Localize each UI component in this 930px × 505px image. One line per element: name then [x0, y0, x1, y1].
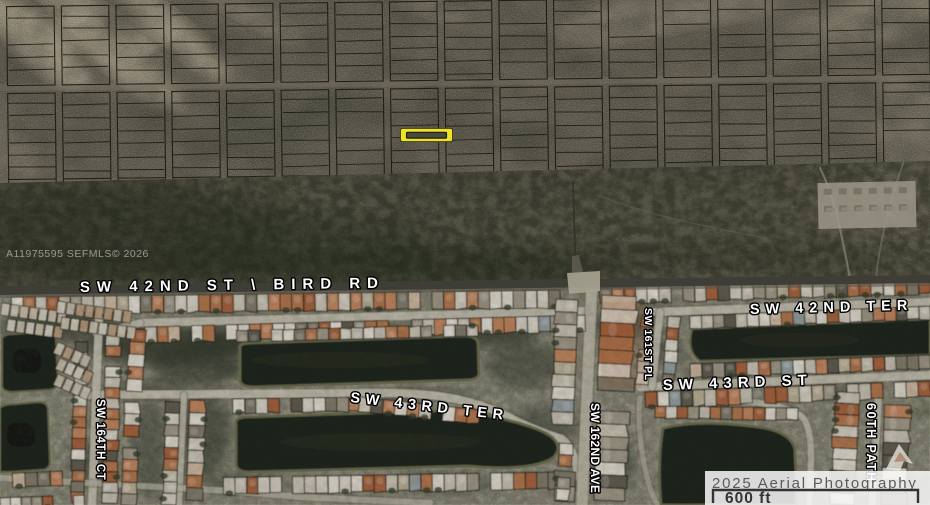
svg-text:SW 162ND AVE: SW 162ND AVE — [588, 403, 602, 493]
svg-text:60TH PATH: 60TH PATH — [864, 403, 878, 483]
svg-text:A11975595 SEFMLS© 2026: A11975595 SEFMLS© 2026 — [6, 248, 149, 260]
svg-text:SW 164TH CT: SW 164TH CT — [94, 399, 106, 480]
svg-text:600 ft: 600 ft — [725, 490, 772, 505]
svg-text:SW 161ST PL: SW 161ST PL — [642, 308, 654, 381]
